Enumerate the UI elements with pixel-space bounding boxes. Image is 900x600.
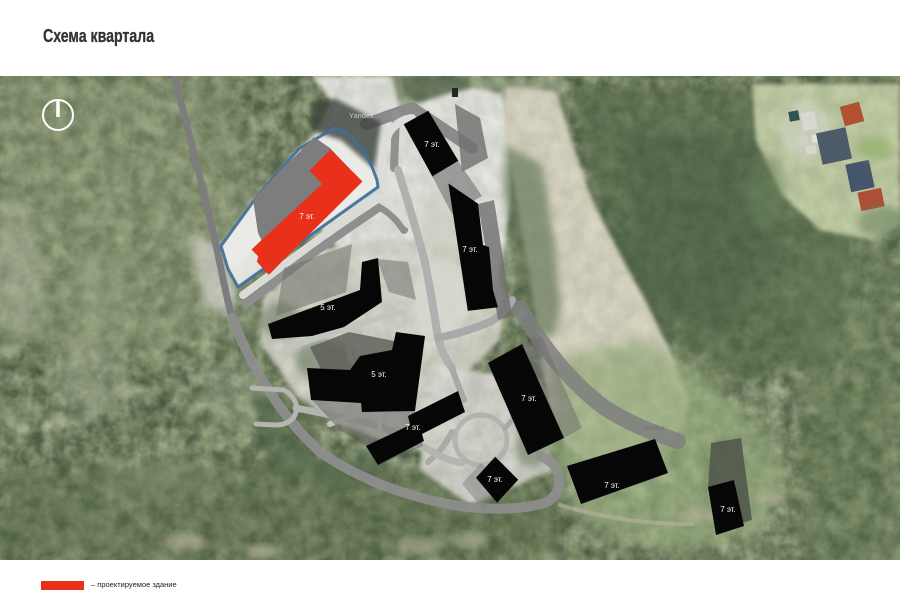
svg-text:7 эт.: 7 эт. — [604, 481, 620, 490]
svg-text:7 эт.: 7 эт. — [405, 423, 421, 432]
svg-text:7 эт.: 7 эт. — [424, 140, 440, 149]
svg-text:7 эт.: 7 эт. — [521, 394, 537, 403]
svg-text:Yandex: Yandex — [349, 111, 374, 120]
svg-text:5 эт.: 5 эт. — [320, 303, 336, 312]
svg-text:5 эт.: 5 эт. — [371, 370, 387, 379]
svg-text:7 эт.: 7 эт. — [720, 505, 736, 514]
svg-text:7 эт.: 7 эт. — [462, 245, 478, 254]
svg-text:7 эт.: 7 эт. — [299, 212, 315, 221]
svg-text:Yandex: Yandex — [640, 423, 665, 432]
svg-text:7 эт.: 7 эт. — [487, 475, 503, 484]
